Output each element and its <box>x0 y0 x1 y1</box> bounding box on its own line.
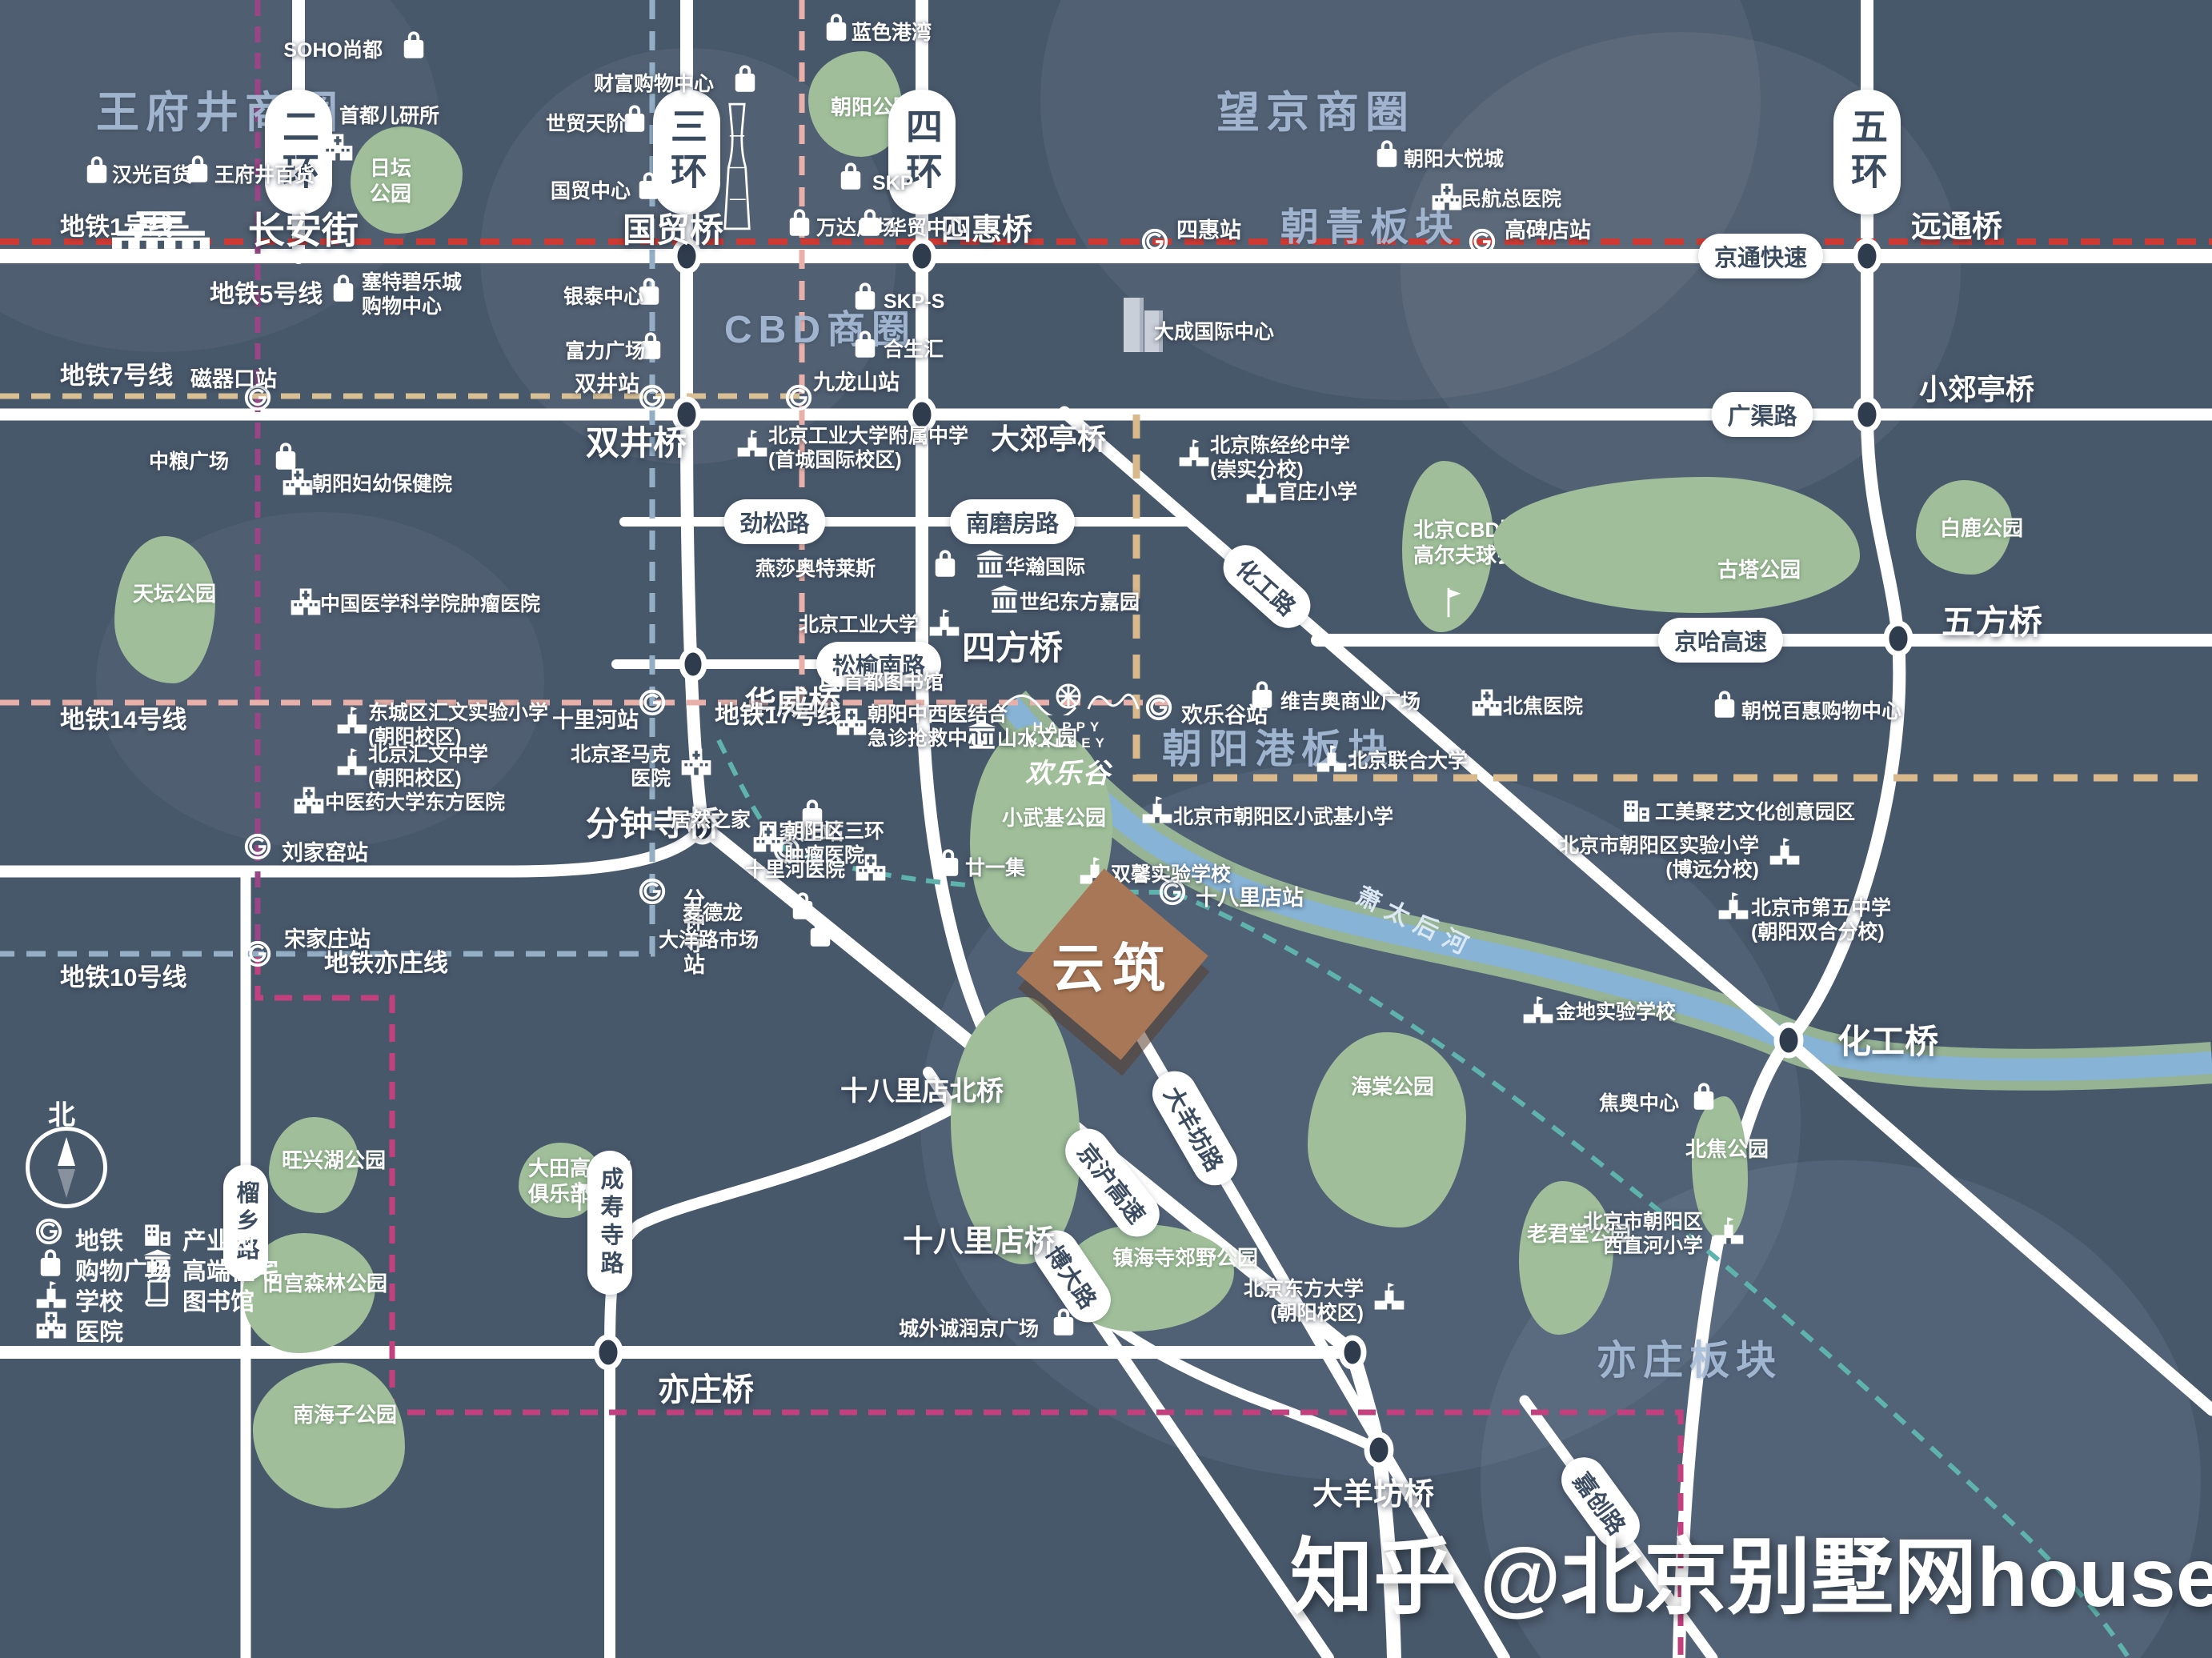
metro-icon <box>783 382 814 413</box>
school-icon <box>1521 992 1556 1027</box>
poi-label: 焦奥中心 <box>1599 1091 1679 1116</box>
poi-label: 东城区汇文实验小学 <box>368 701 548 726</box>
metro-line-label: 地铁14号线 <box>60 699 186 735</box>
bag-icon <box>834 160 868 194</box>
school-icon <box>1140 792 1175 827</box>
poi-label: 大成国际中心 <box>1154 320 1274 345</box>
bag-icon <box>181 153 214 186</box>
bridge-label: 国贸桥 <box>623 203 723 252</box>
poi-label: 医院 <box>631 767 671 791</box>
metro-station-label: 高碑店站 <box>1505 213 1591 244</box>
hospital-icon <box>853 850 888 885</box>
poi-label: 北京市朝阳区 <box>1583 1210 1703 1235</box>
bag-icon <box>632 170 666 203</box>
legend-item-label: 图书馆 <box>182 1282 254 1317</box>
bag-icon <box>848 280 882 314</box>
school-icon <box>1314 741 1349 776</box>
poi-label: 北京陈经纶中学 <box>1210 434 1350 459</box>
poi-label: 金地实验学校 <box>1556 1000 1676 1025</box>
golf-flag-icon <box>1441 586 1468 619</box>
residence-icon <box>988 583 1021 616</box>
poi-label: SKP <box>872 171 913 196</box>
residence-icon <box>141 1247 174 1280</box>
park-label: 镇海寺郊野公园 <box>1112 1242 1258 1272</box>
metro-icon <box>1144 692 1174 723</box>
school-icon <box>335 703 370 738</box>
beijing-location-map: 王府井商圈望京商圈CBD商圈朝青板块朝阳港板块亦庄板块日坛公园朝阳公园天坛公园北… <box>0 0 2212 1658</box>
library-icon <box>141 1277 173 1309</box>
poi-label: SOHO尚都 <box>283 38 383 63</box>
poi-label: 华瀚国际 <box>1005 555 1085 580</box>
poi-label: 中医药大学东方医院 <box>325 791 505 815</box>
poi-label: 朝阳妇幼保健院 <box>312 472 452 497</box>
road-label-pill: 成寿寺路 <box>587 1151 632 1295</box>
property-name: 云筑 <box>1052 926 1173 1003</box>
poi-label: 城外诚润京广场 <box>899 1317 1039 1342</box>
residence-icon <box>973 547 1007 581</box>
watermark: 知乎 @北京别墅网housel... <box>1290 1509 2212 1630</box>
poi-label: SKP-S <box>884 290 944 314</box>
happy-valley-zh: 欢乐谷 <box>992 751 1144 791</box>
school-icon <box>1372 1279 1407 1314</box>
school-icon <box>1176 435 1212 471</box>
poi-label: 北京圣马克 <box>571 743 671 767</box>
poi-label: 合生汇 <box>884 338 944 362</box>
park-label: 海棠公园 <box>1351 1071 1434 1100</box>
poi-label: 燕莎奥特莱斯 <box>755 557 876 582</box>
poi-label: 工美聚艺文化创意园区 <box>1655 800 1855 825</box>
amusement-park-icon <box>992 679 1144 715</box>
metro-icon <box>34 1216 64 1247</box>
bridge-label: 四方桥 <box>962 621 1063 670</box>
road-label-pill: 京通快速 <box>1698 234 1823 278</box>
poi-label: 北京联合大学 <box>1348 749 1468 774</box>
hospital-icon <box>1469 685 1505 720</box>
bridge-label: 双井桥 <box>586 416 687 465</box>
poi-label: 麦德龙 <box>683 901 743 926</box>
bridge-label: 十八里店北桥 <box>840 1069 1004 1108</box>
metro-station-label: 四惠站 <box>1176 213 1241 244</box>
compass-icon <box>26 1127 107 1208</box>
bag-icon <box>932 847 965 880</box>
poi-label: 官庄小学 <box>1277 480 1357 505</box>
school-icon <box>335 744 370 779</box>
bag-icon <box>928 547 962 581</box>
metro-station-label: 磁器口站 <box>190 362 277 393</box>
bridge-label: 大羊坊桥 <box>1312 1469 1434 1513</box>
bag-icon <box>819 11 853 45</box>
school-icon <box>1711 1213 1746 1248</box>
poi-label: 银泰中心 <box>563 285 643 310</box>
industry-icon <box>1620 792 1653 826</box>
poi-label: 西直河小学 <box>1603 1234 1703 1259</box>
poi-label: 北焦医院 <box>1503 695 1583 719</box>
bridge-label: 大郊亭桥 <box>991 416 1106 458</box>
poi-label: (朝阳校区) <box>368 767 462 791</box>
park-label: 白鹿公园 <box>1940 512 2023 542</box>
bag-icon <box>1708 688 1741 722</box>
hospital-icon <box>288 584 323 619</box>
metro-icon <box>1140 226 1170 257</box>
poi-label: 北京东方大学 <box>1244 1277 1364 1302</box>
poi-label: 北京市朝阳区小武基小学 <box>1173 805 1393 830</box>
poi-label: 双馨实验学校 <box>1111 863 1231 887</box>
hospital-icon <box>320 130 355 165</box>
hospital-icon <box>834 704 869 739</box>
poi-label: (朝阳双合分校) <box>1751 920 1885 945</box>
park-label: 旺兴湖公园 <box>282 1144 386 1174</box>
poi-label: 世纪东方嘉园 <box>1020 591 1140 615</box>
poi-label: (博远分校) <box>1665 858 1759 883</box>
park-label: 公园 <box>370 178 411 207</box>
poi-label: 首都儿研所 <box>339 104 439 129</box>
poi-label: 财富购物中心 <box>594 72 714 97</box>
metro-station-label: 双井站 <box>575 366 639 398</box>
poi-label: 世贸天阶 <box>546 112 626 137</box>
district-label: 亦庄板块 <box>1597 1328 1782 1386</box>
poi-label: 国贸中心 <box>551 179 631 204</box>
bridge-label: 亦庄桥 <box>658 1364 754 1410</box>
park-label: 旧宫森林公园 <box>262 1268 387 1297</box>
bridge-label: 小郊亭桥 <box>1919 366 2034 408</box>
poi-label: 朝悦百惠购物中心 <box>1741 699 1901 724</box>
road-label-pill: 京哈高速 <box>1658 618 1783 663</box>
park-label: 天坛公园 <box>133 578 216 607</box>
bridge-label: 化工桥 <box>1837 1015 1938 1063</box>
happy-valley-en: HAPPY VALLEY <box>992 719 1144 751</box>
bag-icon <box>397 29 431 62</box>
industry-icon <box>141 1216 174 1250</box>
metro-station-label: 宋家庄站 <box>284 922 371 953</box>
metro-icon <box>637 687 667 718</box>
metro-icon <box>242 939 273 969</box>
bridge-label: 远通桥 <box>1911 202 2002 246</box>
metro-line-label: 地铁7号线 <box>60 355 173 391</box>
poi-label: 维吉奥商业广场 <box>1280 690 1421 715</box>
metro-icon <box>1467 226 1497 257</box>
tiananmen-icon <box>112 206 210 249</box>
legend-item-label: 医院 <box>75 1312 123 1348</box>
bag-icon <box>1370 138 1404 171</box>
poi-label: 中粮广场 <box>149 450 229 475</box>
bag-icon <box>1687 1080 1721 1114</box>
bridge-label: 长安街 <box>248 202 359 254</box>
park-label: 古塔公园 <box>1717 554 1801 583</box>
library-icon <box>815 663 847 695</box>
road-label-pill: 劲松路 <box>723 499 825 544</box>
tower-icon <box>719 99 755 234</box>
school-icon <box>1767 834 1802 869</box>
bag-icon <box>327 272 360 306</box>
poi-label: 购物中心 <box>362 294 442 319</box>
hospital-icon <box>280 464 315 499</box>
metro-line-label: 地铁5号线 <box>210 274 323 310</box>
metro-line-label: 地铁17号线 <box>715 695 841 731</box>
metro-station-label: 刘家窑站 <box>282 835 368 867</box>
bag-icon <box>848 328 882 362</box>
park-label: 南海子公园 <box>293 1399 397 1428</box>
park-label: 北焦公园 <box>1685 1133 1769 1163</box>
poi-label: 北京市第五中学 <box>1751 896 1891 921</box>
poi-label: 北京汇文中学 <box>368 743 488 767</box>
metro-line-label: 地铁10号线 <box>60 957 186 993</box>
bag-icon <box>783 206 816 240</box>
metro-station-label: 九龙山站 <box>813 365 900 396</box>
poi-label: 廿一集 <box>965 856 1025 881</box>
school-icon <box>1244 472 1279 507</box>
poi-label: 朝阳大悦城 <box>1404 147 1504 172</box>
bag-icon <box>1245 679 1279 712</box>
road-label-pill: 广渠路 <box>1711 392 1813 437</box>
bridge-label: 五方桥 <box>1942 595 2042 644</box>
poi-label: (朝阳校区) <box>1270 1301 1364 1326</box>
park-label: 小武基公园 <box>1002 802 1106 831</box>
road-label-pill: 南磨房路 <box>950 499 1075 544</box>
hospital-icon <box>34 1308 69 1343</box>
happy-valley-logo: HAPPY VALLEY 欢乐谷 <box>992 679 1144 791</box>
bag-icon <box>1047 1306 1080 1340</box>
poi-label: 塞特碧乐城 <box>362 270 462 295</box>
school-icon <box>1716 888 1751 923</box>
ring-road-badge: 五环 <box>1833 90 1901 214</box>
hospital-icon <box>679 744 714 779</box>
poi-label: 富力广场 <box>565 339 645 364</box>
poi-label: 大洋路市场 <box>659 928 759 953</box>
metro-icon <box>637 382 667 413</box>
poi-label: 汉光百货 <box>112 163 192 188</box>
poi-label: 华贸中心 <box>887 216 967 241</box>
poi-label: (首城国际校区) <box>768 448 902 473</box>
bridge-label: 十八里店桥 <box>903 1216 1055 1260</box>
poi-label: 朝阳区三环 <box>784 819 884 844</box>
poi-label: 北京市朝阳区实验小学 <box>1559 834 1759 859</box>
poi-label: 首都图书馆 <box>844 671 944 695</box>
school-icon <box>735 426 770 461</box>
hospital-icon <box>1429 179 1465 214</box>
poi-label: 十里河医院 <box>745 858 845 883</box>
bag-icon <box>80 154 114 187</box>
poi-label: 居然之家 <box>671 808 751 833</box>
metro-icon <box>637 876 667 907</box>
hospital-icon <box>751 821 786 856</box>
poi-label: 蓝色港湾 <box>852 21 932 46</box>
bag-icon <box>803 917 837 951</box>
metro-station-label: 十里河站 <box>552 703 639 734</box>
bag-icon <box>728 62 762 96</box>
metro-icon <box>242 831 273 862</box>
district-label: 望京商圈 <box>1216 77 1415 140</box>
school-icon <box>927 605 962 640</box>
poi-label: 民航总医院 <box>1461 187 1561 212</box>
poi-label: 王府井百货 <box>214 163 315 188</box>
bag-icon <box>34 1247 67 1280</box>
bag-icon <box>853 206 887 240</box>
poi-label: 中国医学科学院肿瘤医院 <box>320 592 540 617</box>
poi-label: 北京工业大学 <box>799 613 919 638</box>
poi-label: 北京工业大学附属中学 <box>768 424 968 449</box>
hospital-icon <box>291 783 327 818</box>
